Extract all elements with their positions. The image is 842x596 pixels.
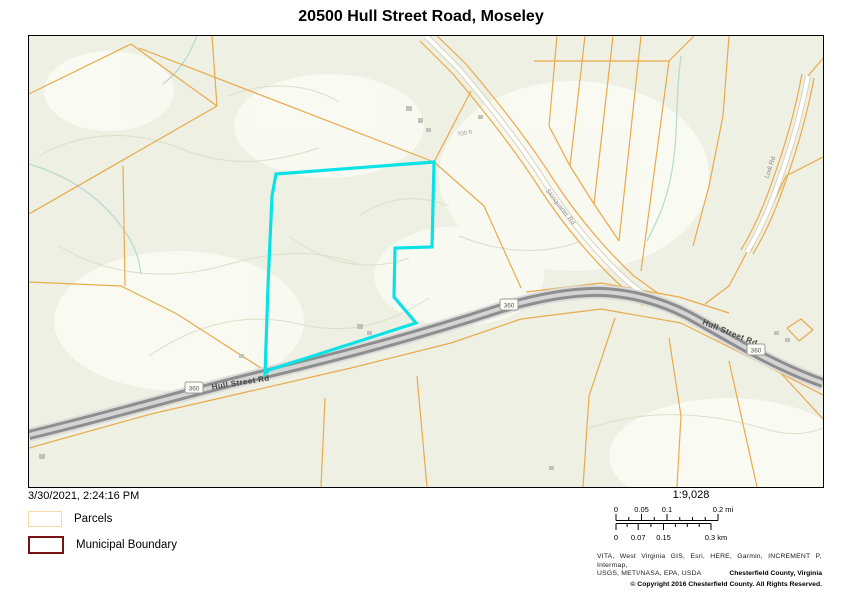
credits-org: Chesterfield County, Virginia	[630, 568, 822, 579]
mi-tick-label: 0.05	[634, 505, 649, 514]
km-tick-label: 0.3 km	[705, 533, 728, 542]
map-svg: 700 ft Skinquarter Rd Lodi Rd Hull Stree…	[29, 36, 823, 487]
municipal-boundary-swatch	[28, 536, 64, 554]
route-360-shield: 360	[747, 344, 765, 355]
credits: Chesterfield County, Virginia © Copyrigh…	[630, 568, 822, 590]
map-canvas: 700 ft Skinquarter Rd Lodi Rd Hull Stree…	[28, 35, 824, 488]
legend-item-parcels: Parcels	[28, 511, 112, 527]
route-shield-text: 360	[504, 303, 515, 310]
export-timestamp: 3/30/2021, 2:24:16 PM	[28, 490, 139, 502]
km-tick-label: 0.07	[631, 533, 646, 542]
route-shield-text: 360	[189, 386, 200, 393]
scale-block: 1:9,028 0 0.05 0.1 0.2 mi	[597, 489, 842, 579]
km-tick-label: 0.15	[656, 533, 671, 542]
scale-bar: 0 0.05 0.1 0.2 mi	[611, 502, 771, 546]
mi-tick-label: 0	[614, 505, 618, 514]
municipal-boundary-label: Municipal Boundary	[76, 539, 177, 551]
km-tick-label: 0	[614, 533, 618, 542]
mi-tick-label: 0.1	[662, 505, 672, 514]
mi-tick-label: 0.2 mi	[713, 505, 734, 514]
page-title: 20500 Hull Street Road, Moseley	[0, 8, 842, 26]
parcels-label: Parcels	[74, 513, 112, 525]
mi-bar	[616, 514, 718, 521]
route-shield-text: 360	[751, 348, 762, 355]
route-360-shield: 360	[500, 299, 518, 310]
map-export-page: 20500 Hull Street Road, Moseley	[0, 0, 842, 596]
parcels-swatch	[28, 511, 62, 527]
scale-ratio: 1:9,028	[611, 489, 771, 501]
legend-item-municipal-boundary: Municipal Boundary	[28, 536, 177, 554]
km-bar	[616, 524, 711, 531]
route-360-shield: 360	[185, 382, 203, 393]
credits-copyright: © Copyright 2016 Chesterfield County. Al…	[630, 579, 822, 590]
